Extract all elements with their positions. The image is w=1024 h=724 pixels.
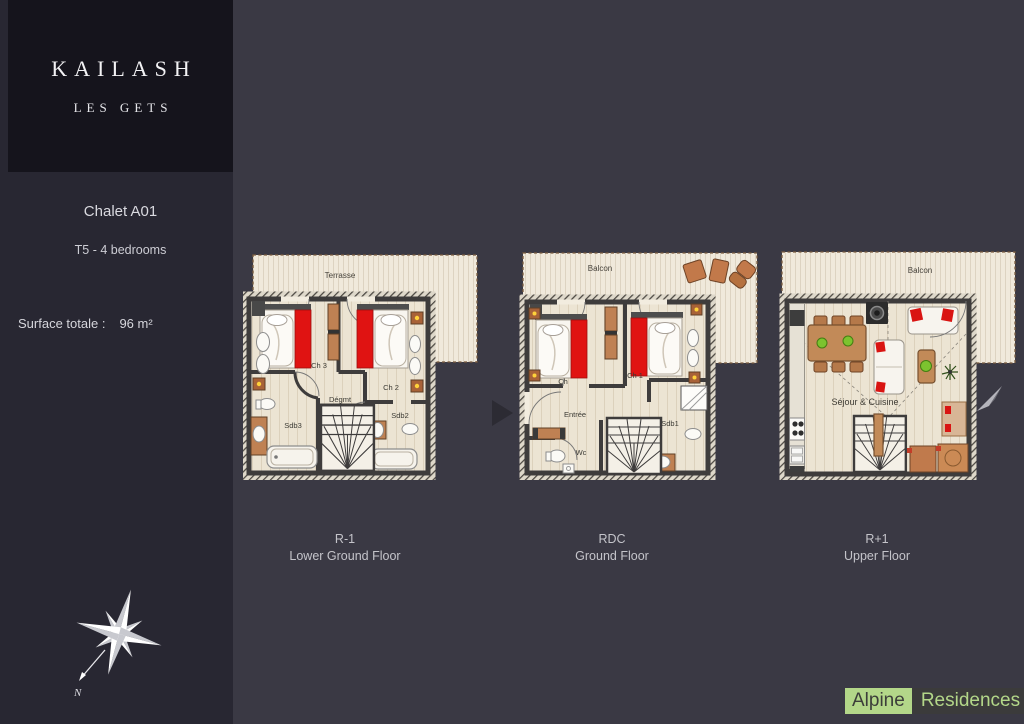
plan-name: Upper Floor: [777, 548, 977, 565]
dining-table: [808, 316, 866, 372]
brand-box: KAILASH LES GETS: [8, 0, 233, 172]
plan-label-rdc: RDC Ground Floor: [512, 531, 712, 565]
staircase: [607, 418, 661, 474]
room-label-sejour: Séjour & Cuisine: [831, 397, 898, 407]
coffee-table: [918, 350, 935, 383]
room-label-sdb1: Sdb1: [661, 419, 679, 428]
staircase: [854, 414, 906, 472]
cabinets: [907, 444, 968, 472]
terrace-label: Terrasse: [325, 271, 356, 280]
room-label-ch1: Ch 1: [627, 371, 643, 380]
sofa: [874, 340, 904, 394]
kitchen-counter: [790, 304, 805, 473]
entry-console: [533, 428, 565, 439]
surface-label: Surface totale :: [18, 316, 105, 331]
wood-stove: [866, 302, 888, 324]
room-label-entree: Entrée: [564, 410, 586, 419]
logo-alpine: Alpine: [845, 688, 912, 714]
plan-label-r-plus-1: R+1 Upper Floor: [777, 531, 977, 565]
closet-column: [605, 307, 617, 359]
north-label: N: [73, 687, 82, 699]
room-label-sdb2: Sdb2: [391, 411, 409, 420]
plan-name: Ground Floor: [512, 548, 712, 565]
plan-name: Lower Ground Floor: [245, 548, 445, 565]
compass-rose-icon: N: [62, 584, 178, 702]
room-label-ch: Ch: [558, 377, 568, 386]
entrance-arrow-icon: [492, 400, 513, 426]
room-label-ch2: Ch 2: [383, 383, 399, 392]
bench: [942, 402, 966, 436]
balcony-label: Balcon: [588, 264, 612, 273]
surface-total: Surface totale : 96 m²: [18, 316, 153, 331]
logo-residences: Residences: [912, 688, 1024, 714]
room-label-wc: Wc: [576, 448, 587, 457]
page: KAILASH LES GETS Chalet A01 T5 - 4 bedro…: [0, 0, 1024, 724]
surface-value: 96 m²: [119, 316, 152, 331]
alpine-residences-logo: Alpine Residences: [845, 688, 1024, 714]
balcony-label: Balcon: [908, 266, 932, 275]
brand-title: KAILASH: [51, 56, 197, 82]
closet-column: [328, 304, 339, 360]
floorplan-rdc: Balcon: [505, 252, 761, 480]
wardrobe: [252, 301, 265, 316]
plan-code: RDC: [512, 531, 712, 548]
plan-code: R+1: [777, 531, 977, 548]
room-label-degmt: Dégmt: [329, 395, 352, 404]
bed-ch2: [357, 304, 409, 368]
room-label-sdb3: Sdb3: [284, 421, 302, 430]
staircase: [321, 405, 374, 471]
direction-arrow-icon: [976, 385, 1004, 413]
plan-code: R-1: [245, 531, 445, 548]
chalet-name: Chalet A01: [8, 203, 233, 220]
brand-subtitle: LES GETS: [74, 100, 173, 116]
room-label-ch3: Ch 3: [311, 361, 327, 370]
floorplan-r-1: Terrasse: [243, 252, 480, 480]
unit-type: T5 - 4 bedrooms: [8, 243, 233, 257]
bed-ch: [535, 314, 587, 378]
floorplan-r-plus-1: Balcon: [770, 250, 1024, 480]
plan-label-r-1: R-1 Lower Ground Floor: [245, 531, 445, 565]
bed-ch1: [631, 312, 683, 376]
